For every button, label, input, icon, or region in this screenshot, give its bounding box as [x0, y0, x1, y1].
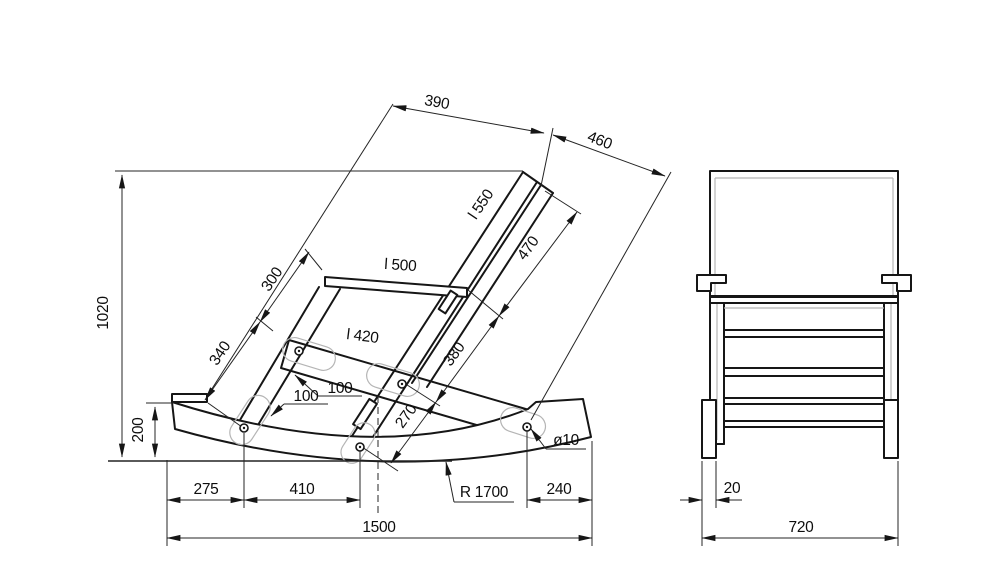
armrest-board: [325, 277, 467, 297]
technical-drawing-page: 390 460 1020 l 550 470 300 l 500 340 l 4…: [0, 0, 1000, 574]
dim-label-1500: 1500: [362, 519, 396, 536]
dim-label-380: 380: [440, 339, 469, 370]
label-l500: l 500: [384, 256, 418, 275]
dim-label-r1700: R 1700: [460, 484, 509, 501]
mid-stretcher: [724, 368, 884, 376]
rocker-front-pad: [172, 394, 207, 402]
ext-line-post-top: [541, 128, 553, 186]
dim-label-200: 200: [130, 417, 147, 443]
ext-line-470-top: [545, 191, 581, 214]
dim-label-470: 470: [514, 233, 543, 264]
dim-label-390: 390: [423, 92, 451, 113]
dimension-labels: 390 460 1020 l 550 470 300 l 500 340 l 4…: [95, 92, 814, 536]
dim-label-275: 275: [194, 481, 219, 498]
right-armrest-cleat: [882, 275, 911, 291]
ext-line-300-top: [305, 249, 322, 270]
dim-line-390: [393, 106, 544, 133]
dim-label-dia10: ø10: [553, 432, 579, 449]
dim-label-100-seat: 100: [328, 380, 354, 397]
ext-line-380-bottom: [404, 383, 440, 406]
front-bolt-center: [243, 427, 245, 429]
label-l420: l 420: [346, 326, 381, 347]
dim-label-1020: 1020: [95, 296, 112, 330]
left-rocker-front: [702, 400, 716, 458]
lower-stretcher-bottom: [724, 421, 884, 427]
side-view-dimensions: [108, 104, 671, 546]
right-rocker-front: [884, 400, 898, 458]
leader-r1700: [446, 462, 454, 502]
ext-line-rear-bolt-up: [531, 172, 671, 420]
left-armrest-cleat: [697, 275, 726, 291]
dim-label-460: 460: [585, 128, 615, 153]
dim-label-270: 270: [392, 401, 421, 432]
lower-stretcher-top: [724, 398, 884, 404]
dim-line-470: [499, 212, 577, 316]
seat-front-bolt-center: [298, 350, 300, 352]
leader-100-leg: [271, 404, 284, 416]
dim-label-720: 720: [789, 519, 815, 536]
rear-bolt-center: [526, 426, 528, 428]
post-notch: [353, 399, 377, 429]
dim-label-240: 240: [547, 481, 573, 498]
dim-label-100-leg: 100: [294, 388, 320, 405]
seat-rear-bolt-center: [401, 383, 403, 385]
front-view: [680, 171, 911, 546]
rocking-chair-drawing: 390 460 1020 l 550 470 300 l 500 340 l 4…: [0, 0, 1000, 574]
center-bolt-center: [359, 446, 361, 448]
dim-label-410: 410: [290, 481, 316, 498]
seat-lower-rail: [724, 330, 884, 337]
seat-band: [724, 303, 884, 330]
backrest-panel: [710, 171, 898, 297]
dim-label-20: 20: [724, 480, 741, 497]
